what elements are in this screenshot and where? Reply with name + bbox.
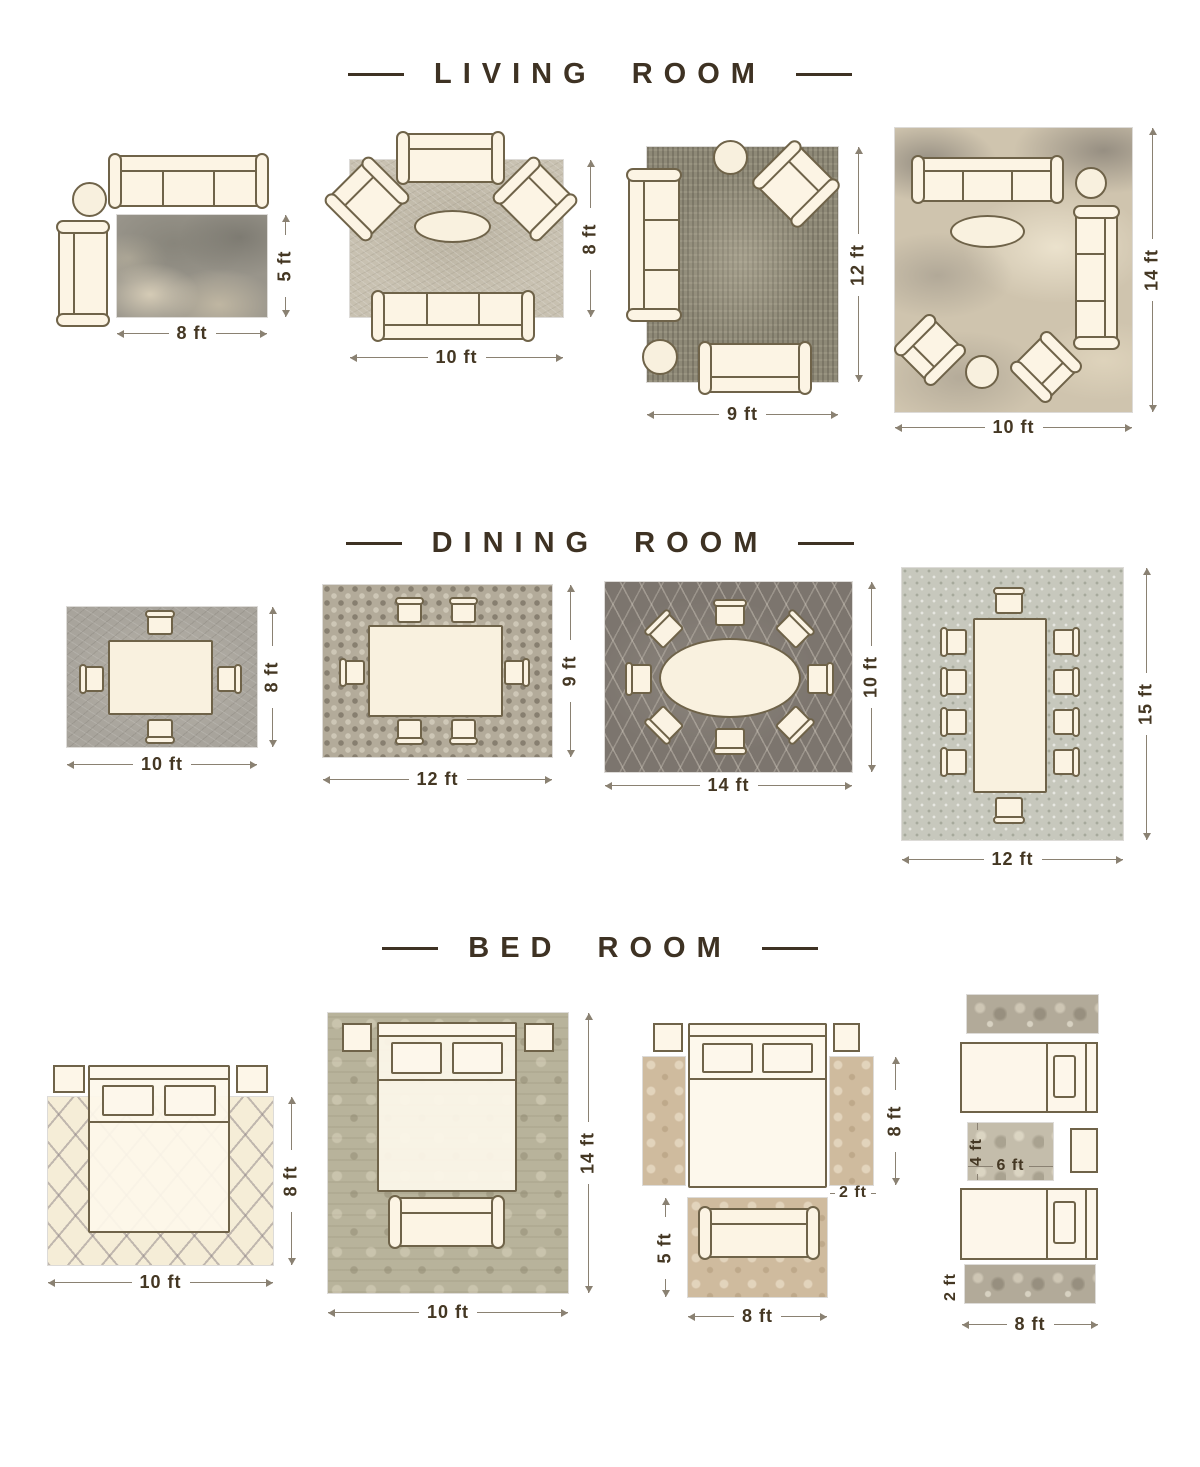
pillow (391, 1042, 442, 1074)
section-title-text: LIVING ROOM (434, 58, 766, 91)
dining-chair (397, 602, 422, 623)
headboard (688, 1023, 827, 1037)
rug-height-label: 8 ft (281, 1166, 302, 1197)
area-rug (117, 215, 267, 317)
dimension-line (895, 1152, 896, 1185)
pillow (164, 1085, 216, 1116)
dimension-line (781, 1316, 827, 1317)
dining-chair (344, 660, 365, 685)
dining-chair (995, 797, 1023, 819)
pillow (102, 1085, 154, 1116)
dimension-line (758, 785, 853, 786)
cushion (112, 172, 162, 205)
rug-width-dimension: 14 ft (605, 776, 852, 794)
runner-length-dimension: 8 ft (884, 1057, 906, 1185)
rug-height-dimension: 9 ft (559, 585, 581, 757)
sofa-back (60, 224, 75, 323)
cushion (915, 172, 962, 200)
title-dash (346, 542, 402, 545)
sofa-seats (75, 224, 106, 323)
round-side-table (72, 182, 107, 217)
rug-width-label: 10 ft (140, 1272, 182, 1293)
layout-dining-14x10: 14 ft 10 ft (602, 578, 887, 793)
dining-chair (147, 719, 173, 739)
layout-dining-12x9: 12 ft 9 ft (320, 578, 582, 790)
twin-bed (960, 1042, 1098, 1113)
dining-chair (217, 666, 237, 692)
dimension-line (766, 414, 838, 415)
rug-width-dimension: 10 ft (67, 755, 257, 773)
chair-back (713, 747, 747, 755)
dimension-line (272, 708, 273, 747)
blanket-fold (688, 1078, 827, 1080)
dimension-line (902, 859, 984, 860)
layout-living-9x12: 9 ft 12 ft (612, 130, 890, 435)
rug-height-label: 15 ft (1136, 683, 1157, 725)
dining-chair (451, 719, 476, 740)
chair-back (79, 664, 87, 694)
sofa-back (1104, 209, 1116, 346)
dimension-line (665, 1198, 666, 1217)
sofa-back (702, 376, 808, 391)
dimension-line (858, 147, 859, 234)
sofa-back (400, 135, 501, 150)
cushion (213, 172, 265, 205)
chair-back (940, 667, 948, 697)
rug-width-label: 10 ft (427, 1302, 469, 1323)
pillow (702, 1043, 752, 1074)
sofa-back (915, 159, 1060, 172)
rug-width-label: 10 ft (436, 347, 478, 368)
bedroom-bench (390, 1197, 503, 1247)
rug-height-label: 14 ft (578, 1132, 599, 1174)
dimension-line (688, 1316, 734, 1317)
sofa-three-seat (373, 292, 533, 340)
title-dash (762, 947, 818, 950)
nightstand (53, 1065, 85, 1093)
rug-height-dimension: 14 ft (1141, 128, 1163, 412)
dining-chair (945, 709, 967, 735)
dining-chair (945, 629, 967, 655)
dining-chair (807, 664, 829, 694)
chair-back (940, 707, 948, 737)
sofa-seats (915, 172, 1060, 200)
dimension-line (285, 215, 286, 235)
section-title-text: BED ROOM (468, 932, 732, 965)
title-dash (348, 73, 404, 76)
dimension-line (190, 1282, 274, 1283)
bedroom-bench (700, 1208, 818, 1258)
pillow (762, 1043, 812, 1074)
dimension-line (962, 1324, 1007, 1325)
nightstand (524, 1023, 554, 1052)
chair-back (826, 662, 834, 696)
dining-chair (147, 615, 173, 635)
blanket-fold (1046, 1042, 1048, 1113)
cushion (1077, 253, 1104, 299)
rug-width-dimension: 8 ft (117, 324, 267, 342)
chair-back (940, 747, 948, 777)
headboard (1085, 1042, 1098, 1113)
layout-bedroom-runners: 8 ft 2 ft 5 ft 8 ft (640, 1015, 912, 1330)
dimension-line (486, 357, 564, 358)
rug-height-dimension: 15 ft (1135, 568, 1157, 840)
rug-placement-guide: LIVING ROOM 8 ft 5 ft (0, 0, 1200, 1467)
dimension-line (1152, 301, 1153, 412)
dimension-line (285, 297, 286, 317)
cushion (375, 294, 426, 324)
rug-height-label: 14 ft (1142, 249, 1163, 291)
oval-dining-table (659, 638, 801, 718)
loveseat (398, 133, 503, 183)
rug-height-dimension: 10 ft (860, 582, 882, 772)
dimension-line (117, 333, 169, 334)
pillows (102, 1085, 215, 1116)
chair-back (1072, 667, 1080, 697)
rug-width-dimension: 9 ft (647, 405, 838, 423)
settee (58, 222, 108, 325)
bedside-runner-rug (830, 1057, 873, 1185)
chair-back (145, 610, 175, 618)
cushion (962, 172, 1011, 200)
chair-back (940, 627, 948, 657)
dining-chair (715, 604, 745, 626)
dimension-line (1029, 1166, 1054, 1167)
cushion (645, 219, 678, 268)
dining-chair (1053, 629, 1075, 655)
cushion (75, 224, 106, 323)
bed (688, 1023, 827, 1188)
foot-rug-width-label: 8 ft (742, 1306, 773, 1327)
rug-width-label: 10 ft (141, 754, 183, 775)
section-title-text: DINING ROOM (432, 527, 769, 560)
layout-bedroom-10x8: 10 ft 8 ft (40, 1055, 308, 1295)
pillows (391, 1042, 503, 1074)
dimension-line (895, 1057, 896, 1090)
runner-rug (967, 995, 1098, 1033)
headboard (377, 1022, 517, 1037)
chair-back (339, 658, 347, 687)
layout-bedroom-twin-runners: 4 ft 6 ft 2 ft 8 ft (920, 985, 1200, 1337)
dimension-line (570, 585, 571, 640)
rug-height-dimension: 8 ft (579, 160, 601, 317)
dining-chair (1053, 669, 1075, 695)
dimension-line (895, 427, 985, 428)
dimension-line (871, 1193, 876, 1194)
bed (377, 1022, 517, 1192)
rug-height-label: 12 ft (848, 243, 869, 285)
sofa-seats (400, 150, 501, 181)
cushion (702, 1225, 816, 1256)
rug-width-label: 14 ft (708, 775, 750, 796)
rug-height-label: 10 ft (861, 656, 882, 698)
chair-back (145, 736, 175, 744)
dining-chair (504, 660, 525, 685)
dimension-line (830, 1193, 835, 1194)
dimension-line (1146, 735, 1147, 840)
cushion (392, 1214, 501, 1245)
nightstand (1070, 1128, 1098, 1173)
title-dash (796, 73, 852, 76)
oval-coffee-table (414, 210, 491, 243)
rug-height-dimension: 14 ft (577, 1013, 599, 1293)
dining-chair (995, 592, 1023, 614)
cushion (645, 269, 678, 318)
sofa-seats (112, 172, 265, 205)
chair-back (1072, 627, 1080, 657)
section-title-living-room: LIVING ROOM (0, 58, 1200, 91)
nightstand (833, 1023, 860, 1052)
dimension-line (328, 1312, 419, 1313)
chair-back (449, 737, 478, 745)
sofa-seats (702, 1225, 816, 1256)
runner-width-dimension: 2 ft (830, 1184, 876, 1202)
blanket-fold (88, 1121, 230, 1123)
dimension-line (467, 779, 553, 780)
rug-height-dimension: 8 ft (280, 1097, 302, 1265)
layout-dining-10x8: 10 ft 8 ft (48, 592, 300, 784)
dining-chair (1053, 709, 1075, 735)
round-ottoman (965, 355, 999, 389)
runner-width-label: 8 ft (1015, 1314, 1046, 1335)
dimension-line (272, 607, 273, 646)
layout-bedroom-10x14: 10 ft 14 ft (325, 1005, 621, 1327)
section-title-dining-room: DINING ROOM (0, 527, 1200, 560)
rug-height-label: 9 ft (560, 656, 581, 687)
pillows (702, 1043, 813, 1074)
foot-rug-height-label: 5 ft (655, 1232, 676, 1263)
dining-chair (945, 669, 967, 695)
cushion (1077, 300, 1104, 346)
dimension-line (291, 1212, 292, 1265)
layout-living-10x14: 10 ft 14 ft (880, 110, 1182, 455)
chair-back (449, 597, 478, 605)
dimension-line (871, 582, 872, 646)
bed (88, 1065, 230, 1233)
round-side-table (1075, 167, 1107, 199)
chair-back (993, 816, 1025, 824)
dimension-line (647, 414, 719, 415)
rug-width-label: 8 ft (177, 323, 208, 344)
rug-height-dimension: 8 ft (261, 607, 283, 747)
dimension-line (588, 1013, 589, 1122)
runner-width-label: 2 ft (839, 1184, 867, 1202)
dining-chair (451, 602, 476, 623)
rug-width-dimension: 10 ft (350, 348, 563, 366)
dimension-line (48, 1282, 132, 1283)
dimension-line (67, 764, 133, 765)
round-side-table (713, 140, 748, 175)
dimension-line (216, 333, 268, 334)
dimension-line (665, 1279, 666, 1298)
dining-table (973, 618, 1047, 793)
twin-bed (960, 1188, 1098, 1260)
headboard (88, 1065, 230, 1080)
sofa-back (112, 157, 265, 172)
chair-back (522, 658, 530, 687)
sofa-three-seat (628, 170, 680, 320)
pillow (1053, 1201, 1076, 1245)
rug-width-label: 12 ft (417, 769, 459, 790)
dimension-line (477, 1312, 568, 1313)
dining-chair (397, 719, 422, 740)
rug-width-dimension: 12 ft (902, 850, 1123, 868)
blanket-fold (377, 1079, 517, 1081)
blanket-fold (1046, 1188, 1048, 1260)
pillow (452, 1042, 503, 1074)
rug-width-dimension: 12 ft (323, 770, 552, 788)
dining-chair (715, 728, 745, 750)
sofa-seats (392, 1214, 501, 1245)
cushion (426, 294, 479, 324)
title-dash (382, 947, 438, 950)
sofa-three-seat (110, 155, 267, 207)
dimension-line (858, 296, 859, 383)
section-title-bed-room: BED ROOM (0, 932, 1200, 965)
dimension-line (570, 702, 571, 757)
chair-back (395, 597, 424, 605)
rug-width-dimension: 10 ft (328, 1303, 568, 1321)
dimension-line (350, 357, 428, 358)
dimension-line (968, 1166, 993, 1167)
runner-height-label: 2 ft (942, 1273, 960, 1301)
rug-height-label: 5 ft (275, 251, 296, 282)
bedside-runner-rug (643, 1057, 685, 1185)
headboard (1085, 1188, 1098, 1260)
rug-width-label: 10 ft (993, 417, 1035, 438)
chair-back (234, 664, 242, 694)
cushion (162, 172, 214, 205)
dimension-line (323, 779, 409, 780)
sofa-seats (702, 345, 808, 376)
dimension-line (977, 1123, 978, 1130)
sofa-back (630, 172, 645, 318)
sofa-back (702, 1210, 816, 1225)
dimension-line (590, 160, 591, 208)
oval-coffee-table (950, 215, 1025, 248)
cushion (1011, 172, 1060, 200)
nightstand (342, 1023, 372, 1052)
dining-table (108, 640, 213, 715)
cushion (645, 172, 678, 219)
rug-height-label: 8 ft (580, 223, 601, 254)
cushion (478, 294, 531, 324)
dining-table (368, 625, 503, 717)
dimension-line (871, 708, 872, 772)
dimension-line (605, 785, 700, 786)
layout-living-10x8: 10 ft 8 ft (330, 118, 602, 370)
rug-width-label: 9 ft (727, 404, 758, 425)
chair-back (993, 587, 1025, 595)
cushion (702, 345, 808, 376)
dimension-line (588, 1184, 589, 1293)
rug-width-dimension: 10 ft (895, 418, 1132, 436)
runner-width-dimension: 8 ft (962, 1315, 1098, 1333)
sofa-back (375, 324, 531, 338)
layout-dining-12x15: 12 ft 15 ft (895, 565, 1185, 880)
chair-back (713, 599, 747, 607)
chair-back (395, 737, 424, 745)
chair-back (1072, 747, 1080, 777)
sofa-three-seat (1075, 207, 1118, 348)
rug-height-dimension: 12 ft (847, 147, 869, 382)
dimension-line (291, 1097, 292, 1150)
runner-length-label: 8 ft (885, 1106, 906, 1137)
dimension-line (590, 270, 591, 318)
rug-height-label: 8 ft (262, 662, 283, 693)
foot-rug-height-dimension: 5 ft (654, 1198, 676, 1297)
between-rug-width-dimension: 6 ft (968, 1157, 1053, 1175)
dimension-line (1152, 128, 1153, 239)
dimension-line (1146, 568, 1147, 673)
sofa-seats (1077, 209, 1104, 346)
chair-back (1072, 707, 1080, 737)
rug-width-dimension: 10 ft (48, 1273, 273, 1291)
cushion (400, 150, 501, 181)
pillow (1053, 1055, 1076, 1098)
dining-chair (630, 664, 652, 694)
sofa-three-seat (913, 157, 1062, 202)
dining-chair (945, 749, 967, 775)
dimension-line (1054, 1324, 1099, 1325)
dimension-line (1043, 427, 1133, 428)
sofa-back (392, 1199, 501, 1214)
rug-height-dimension: 5 ft (274, 215, 296, 317)
between-rug-width-label: 6 ft (997, 1157, 1025, 1175)
dimension-line (191, 764, 257, 765)
title-dash (798, 542, 854, 545)
dining-chair (1053, 749, 1075, 775)
rug-width-label: 12 ft (992, 849, 1034, 870)
foot-rug-width-dimension: 8 ft (688, 1307, 827, 1325)
layout-living-8x5: 8 ft 5 ft (48, 130, 300, 345)
sofa-seats (375, 294, 531, 324)
dimension-line (1042, 859, 1124, 860)
sofa-seats (645, 172, 678, 318)
cushion (1077, 209, 1104, 253)
loveseat (700, 343, 810, 393)
chair-back (625, 662, 633, 696)
runner-rug (965, 1265, 1095, 1303)
nightstand (236, 1065, 268, 1093)
round-ottoman (642, 339, 678, 375)
runner-height-dimension: 2 ft (940, 1265, 962, 1303)
nightstand (653, 1023, 683, 1052)
dining-chair (84, 666, 104, 692)
